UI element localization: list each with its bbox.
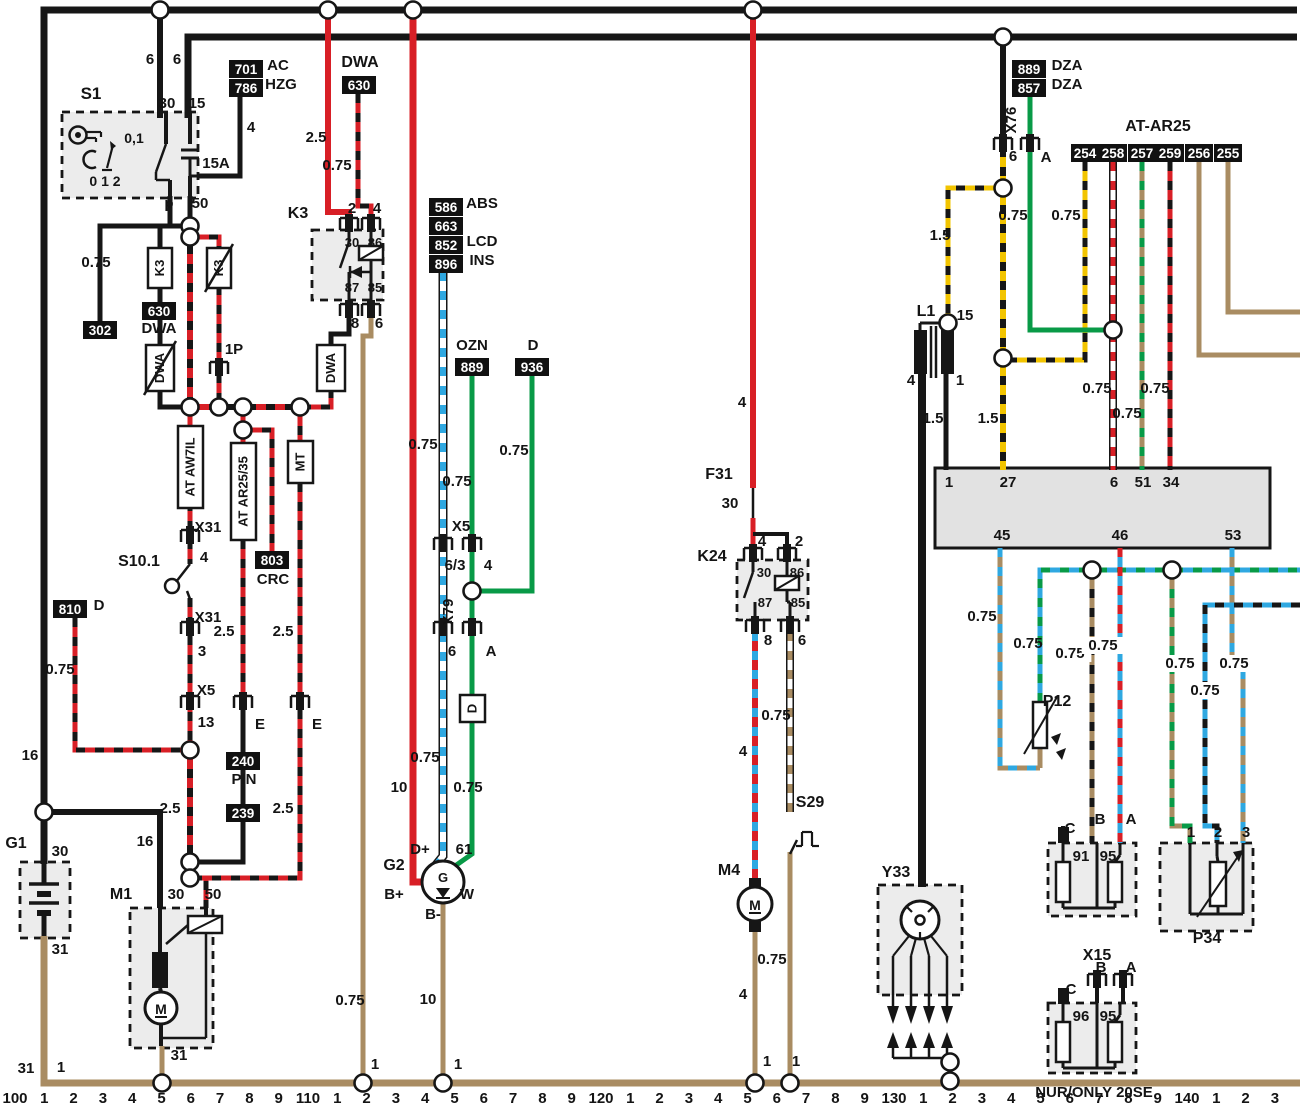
grid-scale-number: 7 <box>1095 1090 1103 1107</box>
label: 87 <box>758 595 772 610</box>
junction-dot <box>182 742 199 759</box>
label: S10.1 <box>118 553 160 570</box>
label: 4 <box>247 119 256 136</box>
label: 2.5 <box>306 129 327 146</box>
label: 46 <box>1112 527 1129 544</box>
wire-bn <box>363 316 371 1083</box>
ref-box-label: 857 <box>1018 81 1041 96</box>
grid-scale-number: 5 <box>743 1090 751 1107</box>
ref-box-label: 258 <box>1102 146 1125 161</box>
symbol-line <box>187 591 190 599</box>
label: 6 <box>448 643 456 660</box>
label: 0.75 <box>761 707 790 724</box>
grid-scale-number: 5 <box>157 1090 165 1107</box>
label: B- <box>425 906 441 923</box>
label: 0.75 <box>1140 380 1169 397</box>
label: 2.5 <box>214 623 235 640</box>
label: A <box>486 643 497 660</box>
label: C <box>1066 981 1077 998</box>
label: 1 <box>371 1056 379 1073</box>
label: 15 <box>189 95 206 112</box>
label: 8 <box>351 315 359 332</box>
junction-dot <box>995 350 1012 367</box>
label: 0.75 <box>1165 655 1194 672</box>
junction-dot <box>235 422 252 439</box>
ref-box-label: 889 <box>461 360 484 375</box>
wire-rd <box>328 10 349 222</box>
label: 53 <box>1225 527 1242 544</box>
label: M1 <box>110 886 132 903</box>
connector-pin <box>186 526 194 544</box>
junction-dot <box>405 2 422 19</box>
grid-scale-number: 1 <box>333 1090 341 1107</box>
arrow-icon <box>1056 748 1066 760</box>
wiring-diagram-page: MGMK3K3DWADWAAT AW7ILAT AR25/35MTD701786… <box>0 0 1300 1108</box>
label: 0.75 <box>1055 645 1084 662</box>
variant-box-label: K3 <box>152 260 167 277</box>
label: M <box>749 897 761 913</box>
label: 1 <box>792 1053 800 1070</box>
label: 0.75 <box>442 473 471 490</box>
label: 30 <box>159 95 176 112</box>
label: 0.75 <box>1082 380 1111 397</box>
label: 1 <box>1187 824 1195 841</box>
ref-box-label: 586 <box>435 200 458 215</box>
label: p <box>164 195 173 212</box>
label: 30 <box>345 235 359 250</box>
label: 30 <box>757 565 771 580</box>
ref-box-label: 810 <box>59 602 82 617</box>
grid-scale-number: 4 <box>714 1090 723 1107</box>
label: S29 <box>796 794 825 811</box>
label: 6 <box>375 315 383 332</box>
grid-scale-number: 130 <box>881 1090 906 1107</box>
junction-dot <box>1164 562 1181 579</box>
variant-box-label: AT AW7IL <box>183 437 198 496</box>
junction-dot <box>292 399 309 416</box>
label: 2 <box>348 200 356 217</box>
label: 1 <box>454 1056 462 1073</box>
connector-pin <box>439 534 447 552</box>
ref-box-label: 257 <box>1131 146 1154 161</box>
ref-box-label: 852 <box>435 238 458 253</box>
label: 6 <box>1009 148 1017 165</box>
label: B <box>1096 959 1107 976</box>
junction-dot <box>747 1075 764 1092</box>
label: E <box>312 716 322 733</box>
label: 0.75 <box>81 254 110 271</box>
label: E <box>255 716 265 733</box>
grid-scale-number: 110 <box>296 1090 320 1107</box>
label: 30 <box>168 886 185 903</box>
label: 15 <box>957 307 974 324</box>
connector-pin <box>367 300 375 318</box>
grid-scale-number: 6 <box>1066 1090 1074 1107</box>
grid-scale-number: 3 <box>392 1090 400 1107</box>
label: OZN <box>456 337 488 354</box>
label: A <box>1126 959 1137 976</box>
grid-scale-number: 7 <box>509 1090 517 1107</box>
ref-box-label: 889 <box>1018 62 1041 77</box>
grid-scale-number: 2 <box>362 1090 370 1107</box>
label: 10 <box>391 779 408 796</box>
label: 6 <box>1110 474 1118 491</box>
junction-dot <box>1105 322 1122 339</box>
wire-gn <box>472 376 532 591</box>
junction-dot <box>942 1054 959 1071</box>
connector-pin <box>186 692 194 710</box>
label: DZA <box>1052 76 1083 93</box>
ref-box-label: 896 <box>435 257 458 272</box>
junction-dot <box>995 29 1012 46</box>
label: 30 <box>722 495 739 512</box>
label: 16 <box>22 747 39 764</box>
connector-pin <box>296 692 304 710</box>
ref-box-label: 240 <box>232 754 255 769</box>
ref-box-label: 254 <box>1074 146 1097 161</box>
label: 87 <box>345 280 359 295</box>
symbol-rect <box>941 330 954 374</box>
label: 10 <box>420 991 437 1008</box>
label: D <box>94 597 105 614</box>
label: 2 <box>1214 824 1222 841</box>
label: P12 <box>1043 693 1072 710</box>
label: W <box>460 886 475 903</box>
symbol-rect <box>37 891 51 897</box>
grid-scale-number: 5 <box>450 1090 458 1107</box>
wire-stripe-yl-bk <box>948 188 1003 324</box>
label: 0.75 <box>998 207 1027 224</box>
label: 1 <box>57 1059 65 1076</box>
symbol-circle <box>916 916 925 925</box>
label: 0.75 <box>967 608 996 625</box>
label: 1 <box>945 474 953 491</box>
grid-scale-number: 120 <box>588 1090 613 1107</box>
label: 0.75 <box>408 436 437 453</box>
label: 1 <box>763 1053 771 1070</box>
label: 0 1 2 <box>89 173 120 189</box>
label: 34 <box>1163 474 1180 491</box>
label: 95 <box>1100 848 1117 865</box>
label: 86 <box>790 565 804 580</box>
grid-scale-number: 2 <box>69 1090 77 1107</box>
label: AC <box>267 57 289 74</box>
symbol-rect <box>749 921 761 932</box>
label: X76 <box>1003 107 1020 134</box>
label: 51 <box>1135 474 1152 491</box>
label: 15A <box>202 155 230 172</box>
symbol-rect <box>1056 862 1070 902</box>
label: 1.5 <box>978 410 999 427</box>
wire-rd-bk <box>75 618 190 750</box>
ref-box-label: 302 <box>89 323 112 338</box>
wire-yl-bk <box>948 188 1003 324</box>
grid-scale-number: 2 <box>655 1090 663 1107</box>
variant-box-label: MT <box>293 453 308 472</box>
label: G <box>438 870 448 885</box>
label: 0.75 <box>1013 635 1042 652</box>
label: 0.75 <box>1051 207 1080 224</box>
label: 1 <box>956 372 964 389</box>
grid-scale-number: 6 <box>187 1090 195 1107</box>
label: G2 <box>383 857 404 874</box>
grid-scale-number: 6 <box>773 1090 781 1107</box>
grid-scale-number: 7 <box>802 1090 810 1107</box>
wire-stripe-bn-gn <box>1172 570 1190 843</box>
label: 85 <box>791 595 805 610</box>
label: DWA <box>142 320 177 337</box>
label: X5 <box>197 682 215 699</box>
grid-scale-number: 8 <box>1124 1090 1132 1107</box>
label: 3 <box>1242 824 1250 841</box>
symbol-rect <box>1108 1022 1122 1062</box>
grid-scale-number: 8 <box>831 1090 839 1107</box>
variant-box-label: D <box>465 704 480 713</box>
label: LCD <box>467 233 498 250</box>
junction-dot <box>235 399 252 416</box>
wire-bk <box>331 316 349 347</box>
grid-scale-number: 2 <box>1241 1090 1249 1107</box>
label: 85 <box>368 280 382 295</box>
junction-dot <box>36 804 53 821</box>
label: D+ <box>410 841 430 858</box>
grid-scale-number: 1 <box>919 1090 927 1107</box>
label: 13 <box>198 714 215 731</box>
label: A <box>1041 149 1052 166</box>
grid-scale-number: 3 <box>99 1090 107 1107</box>
ecu-box <box>935 468 1270 548</box>
label: 1.5 <box>930 227 951 244</box>
label: K3 <box>288 205 309 222</box>
label: 16 <box>137 833 154 850</box>
label: 0.75 <box>1088 637 1117 654</box>
junction-dot <box>182 854 199 871</box>
junction-dot <box>182 870 199 887</box>
label: P/N <box>231 771 256 788</box>
label: Y33 <box>882 864 911 881</box>
ref-box-label: 239 <box>232 806 255 821</box>
label: S1 <box>81 84 102 103</box>
label: 4 <box>738 394 747 411</box>
symbol-line <box>790 840 797 854</box>
grid-scale-number: 3 <box>978 1090 986 1107</box>
variant-box-label: DWA <box>323 352 338 383</box>
grid-scale-number: 1 <box>1212 1090 1220 1107</box>
arrow-icon <box>923 1032 935 1048</box>
grid-scale-number: 9 <box>1154 1090 1162 1107</box>
key-icon <box>75 132 81 138</box>
label: L1 <box>917 303 936 320</box>
junction-dot <box>320 2 337 19</box>
label: 6 <box>173 51 181 68</box>
grid-scale-number: 5 <box>1036 1090 1044 1107</box>
label: 4 <box>739 986 748 1003</box>
grid-scale-number: 1 <box>626 1090 634 1107</box>
label: 0.75 <box>45 661 74 678</box>
grid-scale-number: 2 <box>948 1090 956 1107</box>
label: X31 <box>195 519 222 536</box>
connector-pin <box>186 618 194 636</box>
junction-dot <box>154 1075 171 1092</box>
grid-scale-number: 8 <box>538 1090 546 1107</box>
connector-pin <box>1026 134 1034 152</box>
label: 0,1 <box>124 130 144 146</box>
label: A <box>1126 811 1137 828</box>
grid-scale-number: 1 <box>40 1090 48 1107</box>
wire-bu-bk <box>1205 605 1300 843</box>
arrow-icon <box>887 1032 899 1048</box>
label: 27 <box>1000 474 1017 491</box>
wire-bn-gn <box>1172 570 1190 843</box>
arrow-icon <box>941 1006 953 1024</box>
connector-pin <box>783 544 791 562</box>
ref-box-label: 255 <box>1217 146 1240 161</box>
ref-box-label: 803 <box>261 553 284 568</box>
label: G1 <box>5 835 26 852</box>
label: 0.75 <box>1190 682 1219 699</box>
grid-scale-number: 4 <box>421 1090 430 1107</box>
wire-stripe-rd-bk <box>75 618 190 750</box>
label: M <box>155 1001 167 1017</box>
label: 4 <box>907 372 916 389</box>
arrow-icon <box>941 1032 953 1048</box>
grid-scale-number: 7 <box>216 1090 224 1107</box>
label: M4 <box>718 862 740 879</box>
label: X79 <box>440 599 457 626</box>
ref-box-label: 630 <box>348 78 371 93</box>
label: 31 <box>52 941 69 958</box>
label: 1.5 <box>923 410 944 427</box>
label: 30 <box>52 843 69 860</box>
label: 31 <box>171 1047 188 1064</box>
junction-dot <box>355 1075 372 1092</box>
grid-scale-number: 140 <box>1174 1090 1199 1107</box>
variant-box-label: AT AR25/35 <box>236 456 251 527</box>
label: DZA <box>1052 57 1083 74</box>
junction-dot <box>182 399 199 416</box>
junction-dot <box>182 229 199 246</box>
label: HZG <box>265 76 297 93</box>
label: 1P <box>225 341 243 358</box>
label: 31 <box>18 1060 35 1077</box>
label: X5 <box>452 518 470 535</box>
label: 0.75 <box>757 951 786 968</box>
arrow-icon <box>905 1006 917 1024</box>
junction-dot <box>211 399 228 416</box>
ref-box-label: 259 <box>1159 146 1182 161</box>
label: 3 <box>198 643 206 660</box>
label: 95 <box>1100 1008 1117 1025</box>
label: 4 <box>739 743 748 760</box>
ref-box-label: 701 <box>235 62 258 77</box>
junction-dot <box>435 1075 452 1092</box>
connector-pin <box>215 358 223 376</box>
label: 50 <box>192 195 209 212</box>
label: D <box>528 337 539 354</box>
grid-scale-number: 100 <box>2 1090 27 1107</box>
label: 6 <box>798 632 806 649</box>
label: 0.75 <box>335 992 364 1009</box>
label: 86 <box>368 235 382 250</box>
grid-scale-number: 9 <box>861 1090 869 1107</box>
label: 61 <box>456 841 473 858</box>
wire-bn <box>1199 162 1300 355</box>
label: AT-AR25 <box>1125 118 1191 135</box>
label: 45 <box>994 527 1011 544</box>
symbol-rect <box>1056 1022 1070 1062</box>
label: 4 <box>200 549 209 566</box>
arrow-icon <box>887 1006 899 1024</box>
connector-pin <box>786 616 794 634</box>
junction-dot <box>464 583 481 600</box>
connector-pin <box>468 534 476 552</box>
grid-scale-number: 8 <box>245 1090 253 1107</box>
label: 4 <box>758 533 767 550</box>
label: B <box>1095 811 1106 828</box>
label: F31 <box>705 466 733 483</box>
arrow-icon <box>905 1032 917 1048</box>
wire-bn <box>1228 162 1300 312</box>
connector-pin <box>468 618 476 636</box>
label: 4 <box>484 557 493 574</box>
label: 6/3 <box>445 557 466 574</box>
grid-scale-number: 4 <box>128 1090 137 1107</box>
wire-stripe-bu-bk <box>1205 605 1300 843</box>
label: 4 <box>373 200 382 217</box>
label: 8 <box>764 632 772 649</box>
arrow-icon <box>923 1006 935 1024</box>
connector-pin <box>749 544 757 562</box>
junction-dot <box>940 315 957 332</box>
symbol-rect <box>1210 862 1226 906</box>
label: INS <box>469 252 494 269</box>
connector-pin <box>239 692 247 710</box>
symbol-rect <box>37 910 51 916</box>
label: K24 <box>697 548 726 565</box>
label: DWA <box>341 54 379 71</box>
label: 2 <box>795 533 803 550</box>
ref-box-label: 256 <box>1188 146 1211 161</box>
grid-scale-number: 3 <box>1271 1090 1279 1107</box>
label: 0.75 <box>453 779 482 796</box>
symbol-rect <box>152 952 168 988</box>
label: 2.5 <box>273 623 294 640</box>
label: CRC <box>257 571 290 588</box>
ref-box-label: 630 <box>148 304 171 319</box>
label: B+ <box>384 886 404 903</box>
junction-dot <box>995 180 1012 197</box>
connector-pin <box>999 134 1007 152</box>
component-box-S1 <box>62 112 198 198</box>
ref-box-label: 663 <box>435 219 458 234</box>
grid-scale-number: 6 <box>480 1090 488 1107</box>
wire-gn <box>1030 148 1113 330</box>
junction-dot <box>152 2 169 19</box>
junction-dot <box>1084 562 1101 579</box>
label: 50 <box>205 886 222 903</box>
grid-scale-number: 3 <box>685 1090 693 1107</box>
label: 0.75 <box>410 749 439 766</box>
label: 6 <box>146 51 154 68</box>
ref-box-label: 786 <box>235 81 258 96</box>
ref-box-label: 936 <box>521 360 544 375</box>
label: ABS <box>466 195 498 212</box>
label: 0.75 <box>1112 405 1141 422</box>
connector-pin <box>751 616 759 634</box>
label: C <box>1065 820 1076 837</box>
wiring-diagram: MGMK3K3DWADWAAT AW7ILAT AR25/35MTD701786… <box>0 0 1300 1108</box>
symbol-rect <box>914 330 927 374</box>
